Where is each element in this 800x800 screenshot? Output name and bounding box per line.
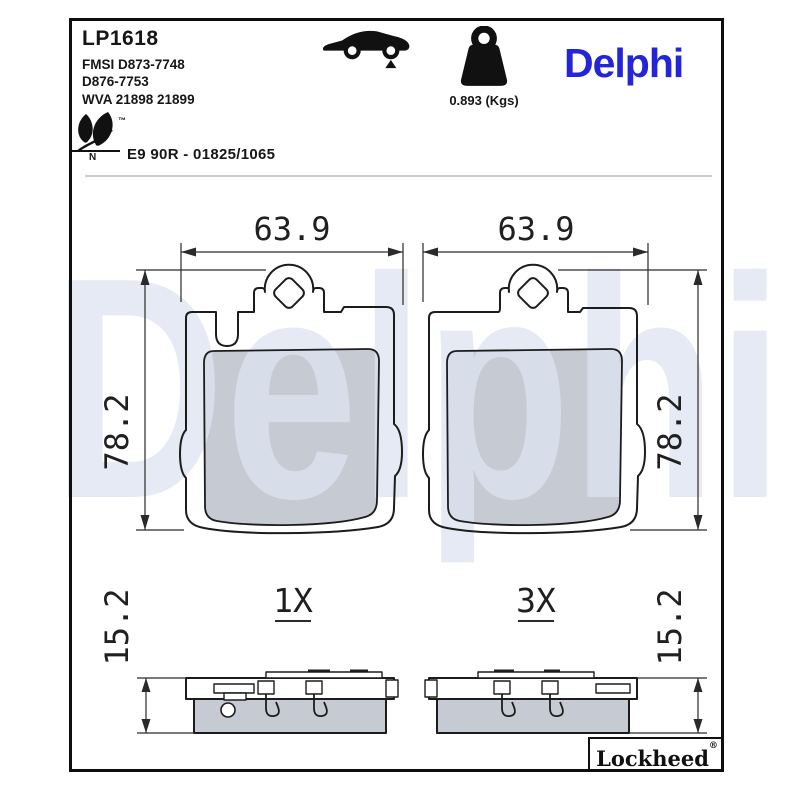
arrowhead [694, 678, 703, 692]
side-view-right [425, 671, 637, 733]
side-spring-right [478, 672, 594, 678]
front-wheel [346, 44, 359, 57]
clip-box-left-1 [258, 681, 274, 694]
registered-symbol: ® [709, 741, 718, 751]
clip-box-left-2 [306, 681, 322, 694]
rear-axle-marker-icon [385, 60, 396, 68]
rear-wheel [384, 44, 397, 57]
title-block: Lockheed® [588, 737, 724, 772]
quantity-label-left: 1X [273, 581, 313, 620]
dim-label-thickness-left: 15.2 [98, 588, 136, 665]
arrowhead [694, 719, 703, 733]
side-spring-left [266, 672, 382, 678]
dim-thickness-right [629, 678, 707, 733]
car-icon [320, 22, 412, 72]
watermark-text: Delphi [52, 213, 784, 566]
dim-label-height-right: 78.2 [651, 393, 689, 470]
lockheed-logo: Lockheed® [596, 741, 718, 771]
wva-reference: WVA 21898 21899 [82, 92, 195, 107]
eco-mark-letter: N [89, 152, 96, 163]
weight-icon [451, 26, 517, 92]
lockheed-wordmark: Lockheed [596, 746, 709, 771]
arrowhead [142, 719, 151, 733]
leaf-small [78, 114, 93, 143]
side-friction-right [437, 699, 629, 733]
end-tab-right-view [425, 680, 437, 697]
dim-label-width-left: 63.9 [253, 210, 330, 248]
dim-label-height-left: 78.2 [98, 393, 136, 470]
part-number: LP1618 [82, 27, 159, 51]
delphi-watermark: Delphi [52, 213, 784, 566]
side-views [186, 671, 637, 733]
weight-indicator [448, 26, 520, 97]
leaf-icon [72, 110, 122, 152]
fmsi-reference-line1: FMSI D873-7748 [82, 57, 185, 72]
dim-label-thickness-right: 15.2 [651, 588, 689, 665]
ece-approval-number: E9 90R - 01825/1065 [127, 146, 275, 163]
side-friction-left [194, 699, 386, 733]
clip-box-right-1 [494, 681, 510, 694]
weight-body [461, 45, 507, 86]
header-divider [85, 175, 712, 177]
trademark-symbol: ™ [118, 116, 126, 125]
sensor-bracket-step-left [224, 693, 246, 700]
fmsi-reference-line2: D876-7753 [82, 74, 149, 89]
side-view-left [186, 671, 398, 733]
vehicle-position-indicator [320, 22, 412, 77]
end-tab-left-view [386, 680, 398, 697]
dim-label-width-right: 63.9 [497, 210, 574, 248]
wear-sensor-grommet [221, 703, 235, 717]
bracket-right-view [596, 684, 630, 693]
datasheet-page: Delphi [0, 0, 800, 800]
clip-box-right-2 [542, 681, 558, 694]
quantity-label-right: 3X [516, 581, 556, 620]
delphi-logo: Delphi [564, 40, 683, 87]
arrowhead [142, 678, 151, 692]
sensor-bracket-left [214, 684, 254, 693]
